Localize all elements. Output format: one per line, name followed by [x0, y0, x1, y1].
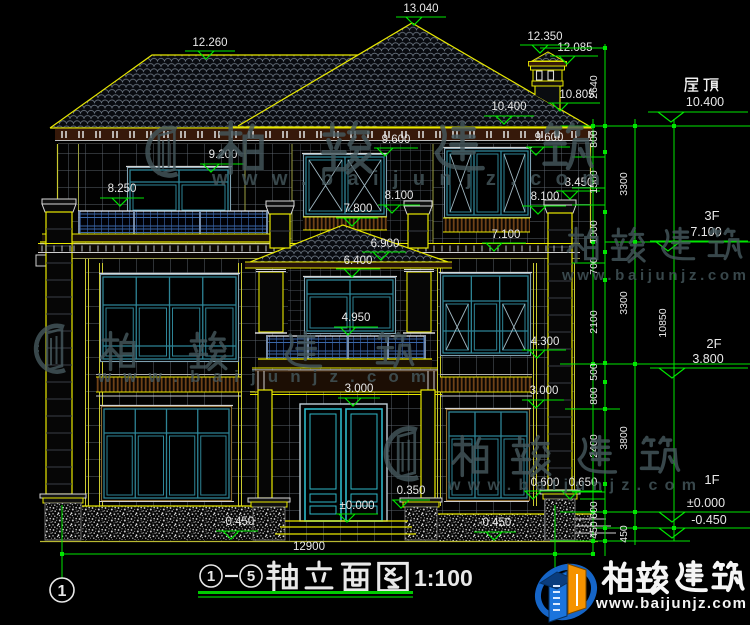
svg-text:www.baijunjz.com: www.baijunjz.com [595, 595, 746, 612]
svg-text:1F: 1F [704, 472, 719, 487]
svg-text:7.100: 7.100 [492, 229, 521, 241]
svg-text:1: 1 [58, 583, 67, 600]
svg-text:7.800: 7.800 [344, 203, 373, 215]
svg-text:±0.000: ±0.000 [687, 496, 725, 510]
svg-text:450: 450 [618, 525, 630, 543]
svg-text:-0.450: -0.450 [222, 516, 255, 528]
svg-text:600: 600 [588, 501, 600, 519]
svg-text:2F: 2F [706, 336, 721, 351]
svg-text:4.300: 4.300 [531, 336, 560, 348]
svg-text:-0.450: -0.450 [691, 513, 726, 527]
svg-text:3F: 3F [704, 208, 719, 223]
svg-text:6.400: 6.400 [344, 255, 373, 267]
svg-text:-0.450: -0.450 [479, 517, 512, 529]
svg-text:10.400: 10.400 [491, 101, 526, 113]
svg-text:800: 800 [588, 130, 600, 148]
svg-text:2640: 2640 [588, 75, 600, 99]
svg-text:0.350: 0.350 [397, 485, 426, 497]
svg-text:12900: 12900 [293, 541, 325, 553]
svg-text:3.800: 3.800 [692, 352, 723, 366]
svg-text:3.000: 3.000 [530, 385, 559, 397]
svg-text:3300: 3300 [618, 172, 630, 196]
svg-text:2100: 2100 [588, 310, 600, 334]
svg-text:10850: 10850 [657, 308, 669, 337]
svg-text:9.600: 9.600 [382, 134, 411, 146]
svg-text:1: 1 [207, 568, 215, 585]
svg-text:3800: 3800 [618, 426, 630, 450]
svg-text:13.040: 13.040 [403, 3, 438, 15]
svg-text:10.400: 10.400 [686, 95, 724, 109]
svg-text:6.900: 6.900 [371, 238, 400, 250]
svg-text:8.100: 8.100 [385, 190, 414, 202]
svg-text:12.260: 12.260 [192, 37, 227, 49]
svg-text:5: 5 [247, 568, 255, 585]
svg-text:450: 450 [588, 521, 600, 539]
svg-text:500: 500 [588, 363, 600, 381]
svg-text:8.250: 8.250 [108, 183, 137, 195]
svg-text:3300: 3300 [618, 291, 630, 315]
svg-text:4.950: 4.950 [342, 312, 371, 324]
svg-text:1:100: 1:100 [414, 565, 473, 591]
svg-text:8.100: 8.100 [531, 191, 560, 203]
svg-text:800: 800 [588, 387, 600, 405]
svg-text:±0.000: ±0.000 [339, 500, 374, 512]
